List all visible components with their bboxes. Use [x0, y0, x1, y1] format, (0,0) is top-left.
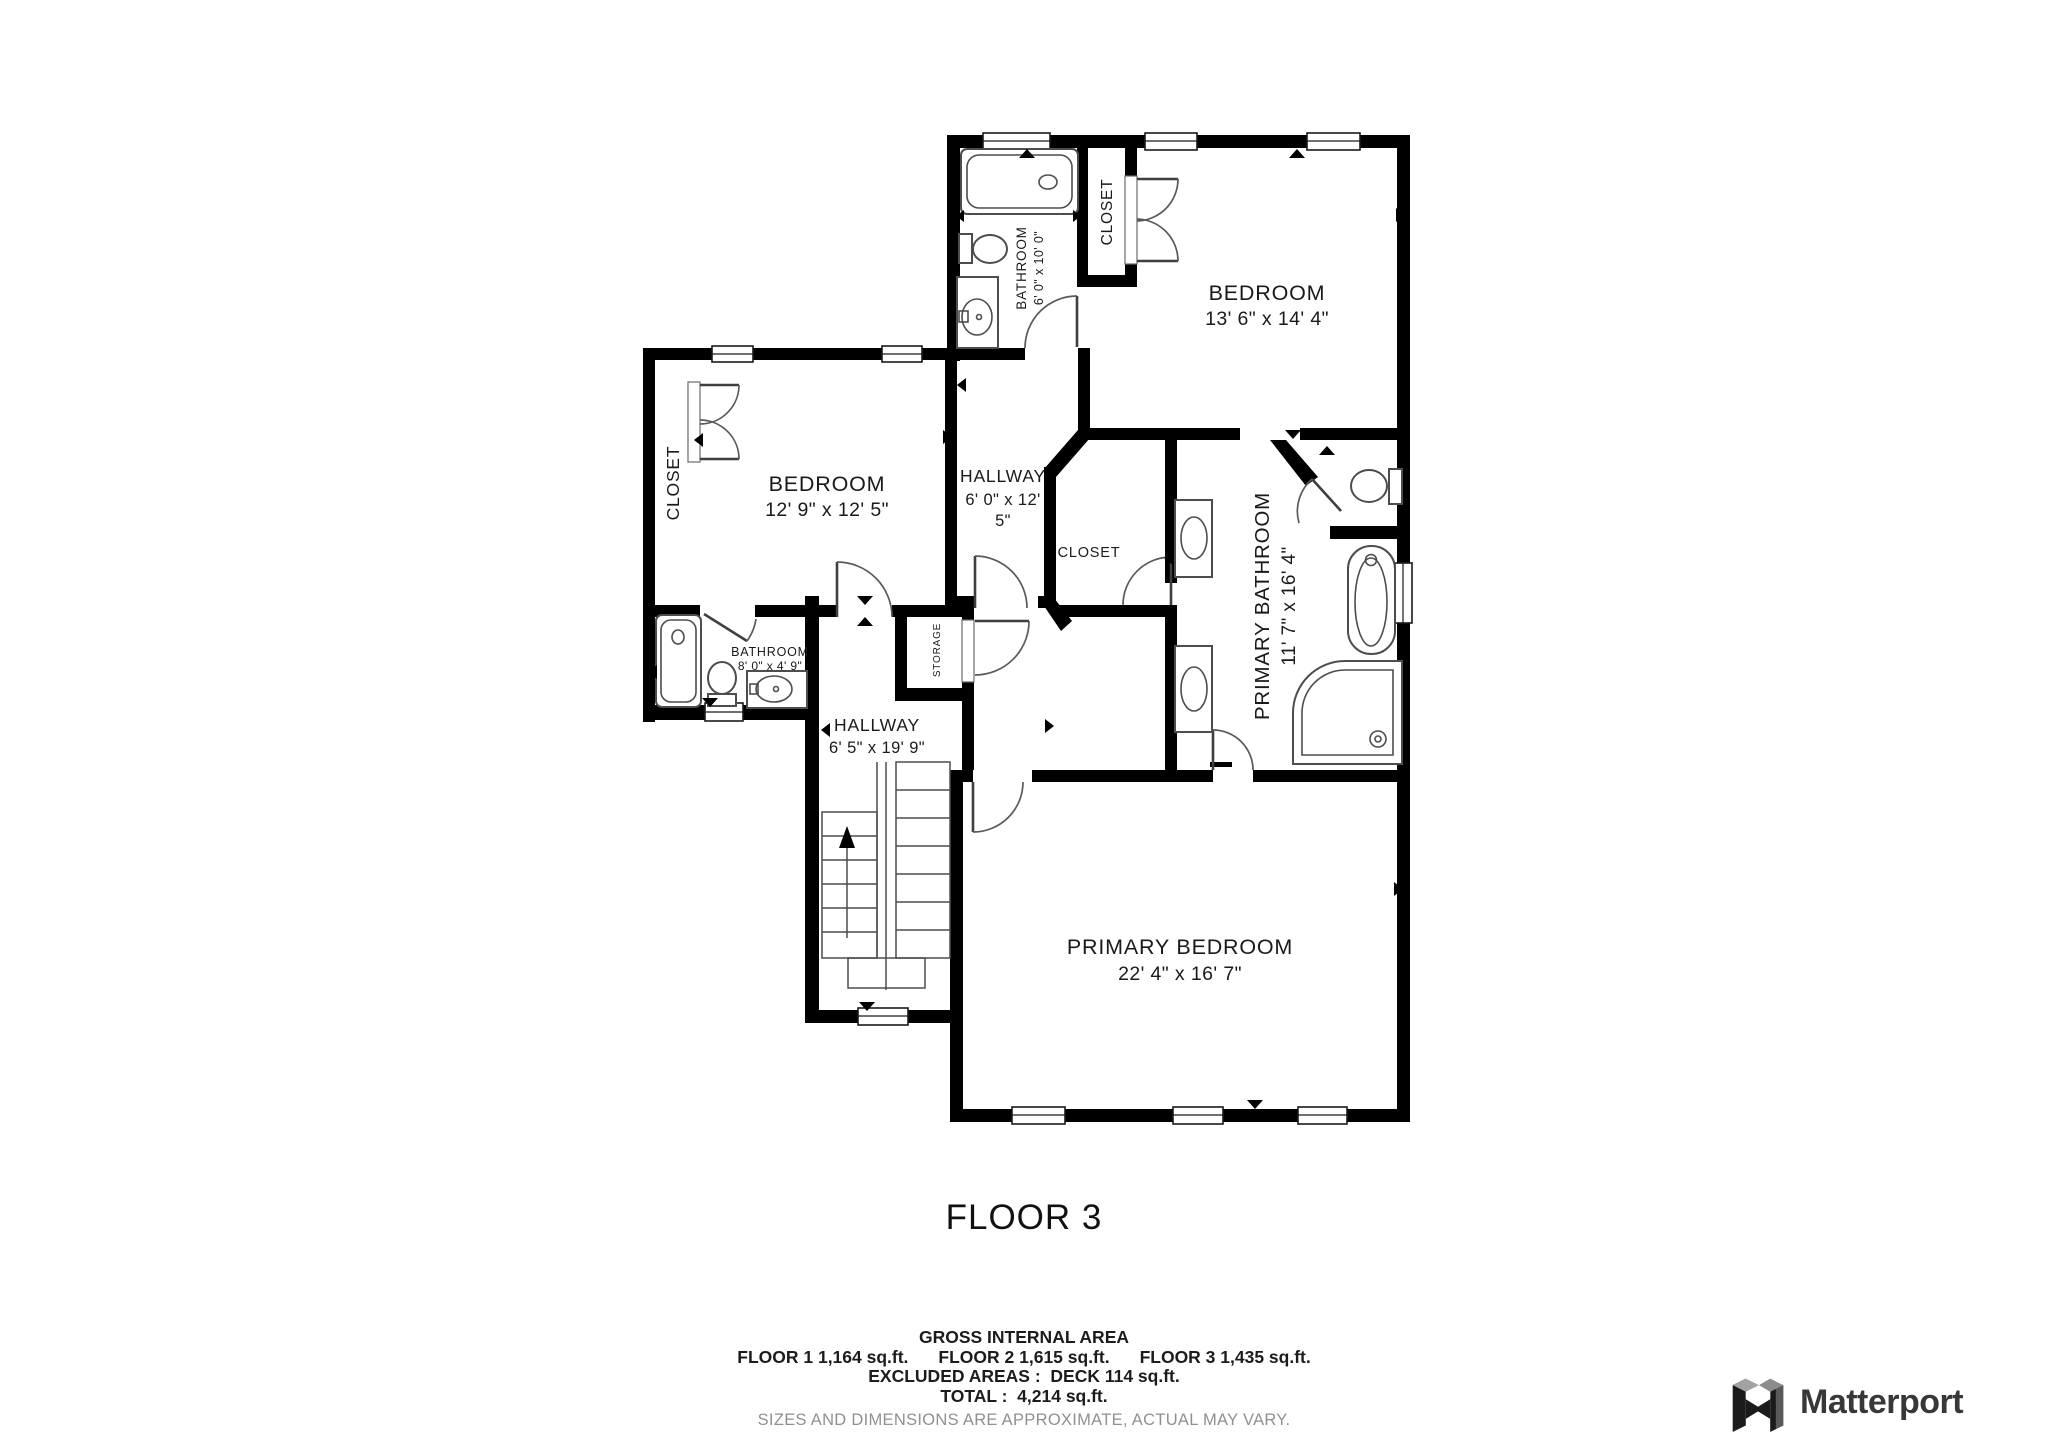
bedroom-top-dims: 13' 6" x 14' 4" [1205, 308, 1329, 330]
toilet [1351, 469, 1402, 504]
closet-mid-label: CLOSET [1058, 545, 1121, 561]
sink-vanity [957, 277, 998, 348]
bathtub [961, 149, 1078, 214]
window [882, 346, 922, 362]
door-hallway-passage [975, 556, 1027, 608]
sink-vanity [747, 671, 807, 708]
window [1395, 563, 1412, 623]
sink-vanity [1175, 646, 1212, 732]
bedroom-mid-label: BEDROOM [769, 472, 886, 496]
door-mid-closet [1123, 557, 1171, 605]
hallway-upper-label: HALLWAY [960, 466, 1046, 486]
primary-bathroom-label: PRIMARY BATHROOM [1251, 492, 1274, 720]
bathroom-small-dims: 8' 0" x 4' 9" [738, 659, 802, 673]
hallway-lower-label: HALLWAY [834, 715, 920, 735]
stairs-up-arrow [839, 826, 855, 938]
matterport-logo: Matterport [1728, 1366, 2028, 1438]
bathroom-top-dims: 6' 0" x 10' 0" [1032, 231, 1046, 305]
sink-vanity [1175, 500, 1212, 577]
primary-bedroom-dims: 22' 4" x 16' 7" [1118, 963, 1242, 985]
primary-bedroom-label: PRIMARY BEDROOM [1067, 935, 1293, 959]
freestanding-tub [1348, 546, 1395, 654]
bedroom-mid-dims: 12' 9" x 12' 5" [765, 499, 889, 521]
hallway-lower-dims: 6' 5" x 19' 9" [829, 739, 925, 757]
door-mid-bedroom [837, 562, 892, 617]
bathroom-small-label: BATHROOM [731, 645, 809, 659]
bathroom-top-label: BATHROOM [1014, 226, 1029, 309]
storage-label: STORAGE [932, 623, 943, 677]
staircase [822, 762, 950, 990]
window [1298, 1107, 1347, 1124]
closet-left-label: CLOSET [663, 446, 683, 521]
floor-areas: FLOOR 1 1,164 sq.ft. FLOOR 2 1,615 sq.ft… [0, 1348, 2048, 1368]
door-primary-bedroom [973, 782, 1023, 832]
double-door-left-closet [688, 382, 739, 462]
toilet [959, 234, 1007, 263]
floor2-area: FLOOR 2 1,615 sq.ft. [938, 1348, 1109, 1368]
door-small-bathroom [704, 614, 756, 641]
window [1145, 133, 1197, 150]
bathtub [656, 615, 701, 707]
floor3-area: FLOOR 3 1,435 sq.ft. [1140, 1348, 1311, 1368]
window [712, 346, 753, 362]
corner-shower [1293, 661, 1402, 764]
matterport-logo-icon [1728, 1369, 1788, 1435]
window [1173, 1107, 1223, 1124]
door-water-closet [1297, 479, 1341, 523]
floor1-area: FLOOR 1 1,164 sq.ft. [737, 1348, 908, 1368]
closet-top-label: CLOSET [1099, 179, 1116, 246]
primary-bathroom-dims: 11' 7" x 16' 4" [1279, 546, 1300, 665]
hallway-upper-dims-1: 6' 0" x 12' [965, 491, 1040, 509]
floor-title: FLOOR 3 [0, 1198, 2048, 1238]
double-door-top-closet [1125, 176, 1178, 264]
window [858, 1008, 908, 1025]
matterport-logo-text: Matterport [1800, 1383, 1963, 1422]
door-storage [962, 620, 1029, 682]
gross-internal-area-title: GROSS INTERNAL AREA [0, 1328, 2048, 1348]
window [1012, 1107, 1065, 1124]
window [1307, 133, 1360, 150]
hallway-upper-dims-2: 5" [995, 512, 1011, 530]
window [983, 133, 1050, 150]
bedroom-top-label: BEDROOM [1209, 281, 1326, 305]
